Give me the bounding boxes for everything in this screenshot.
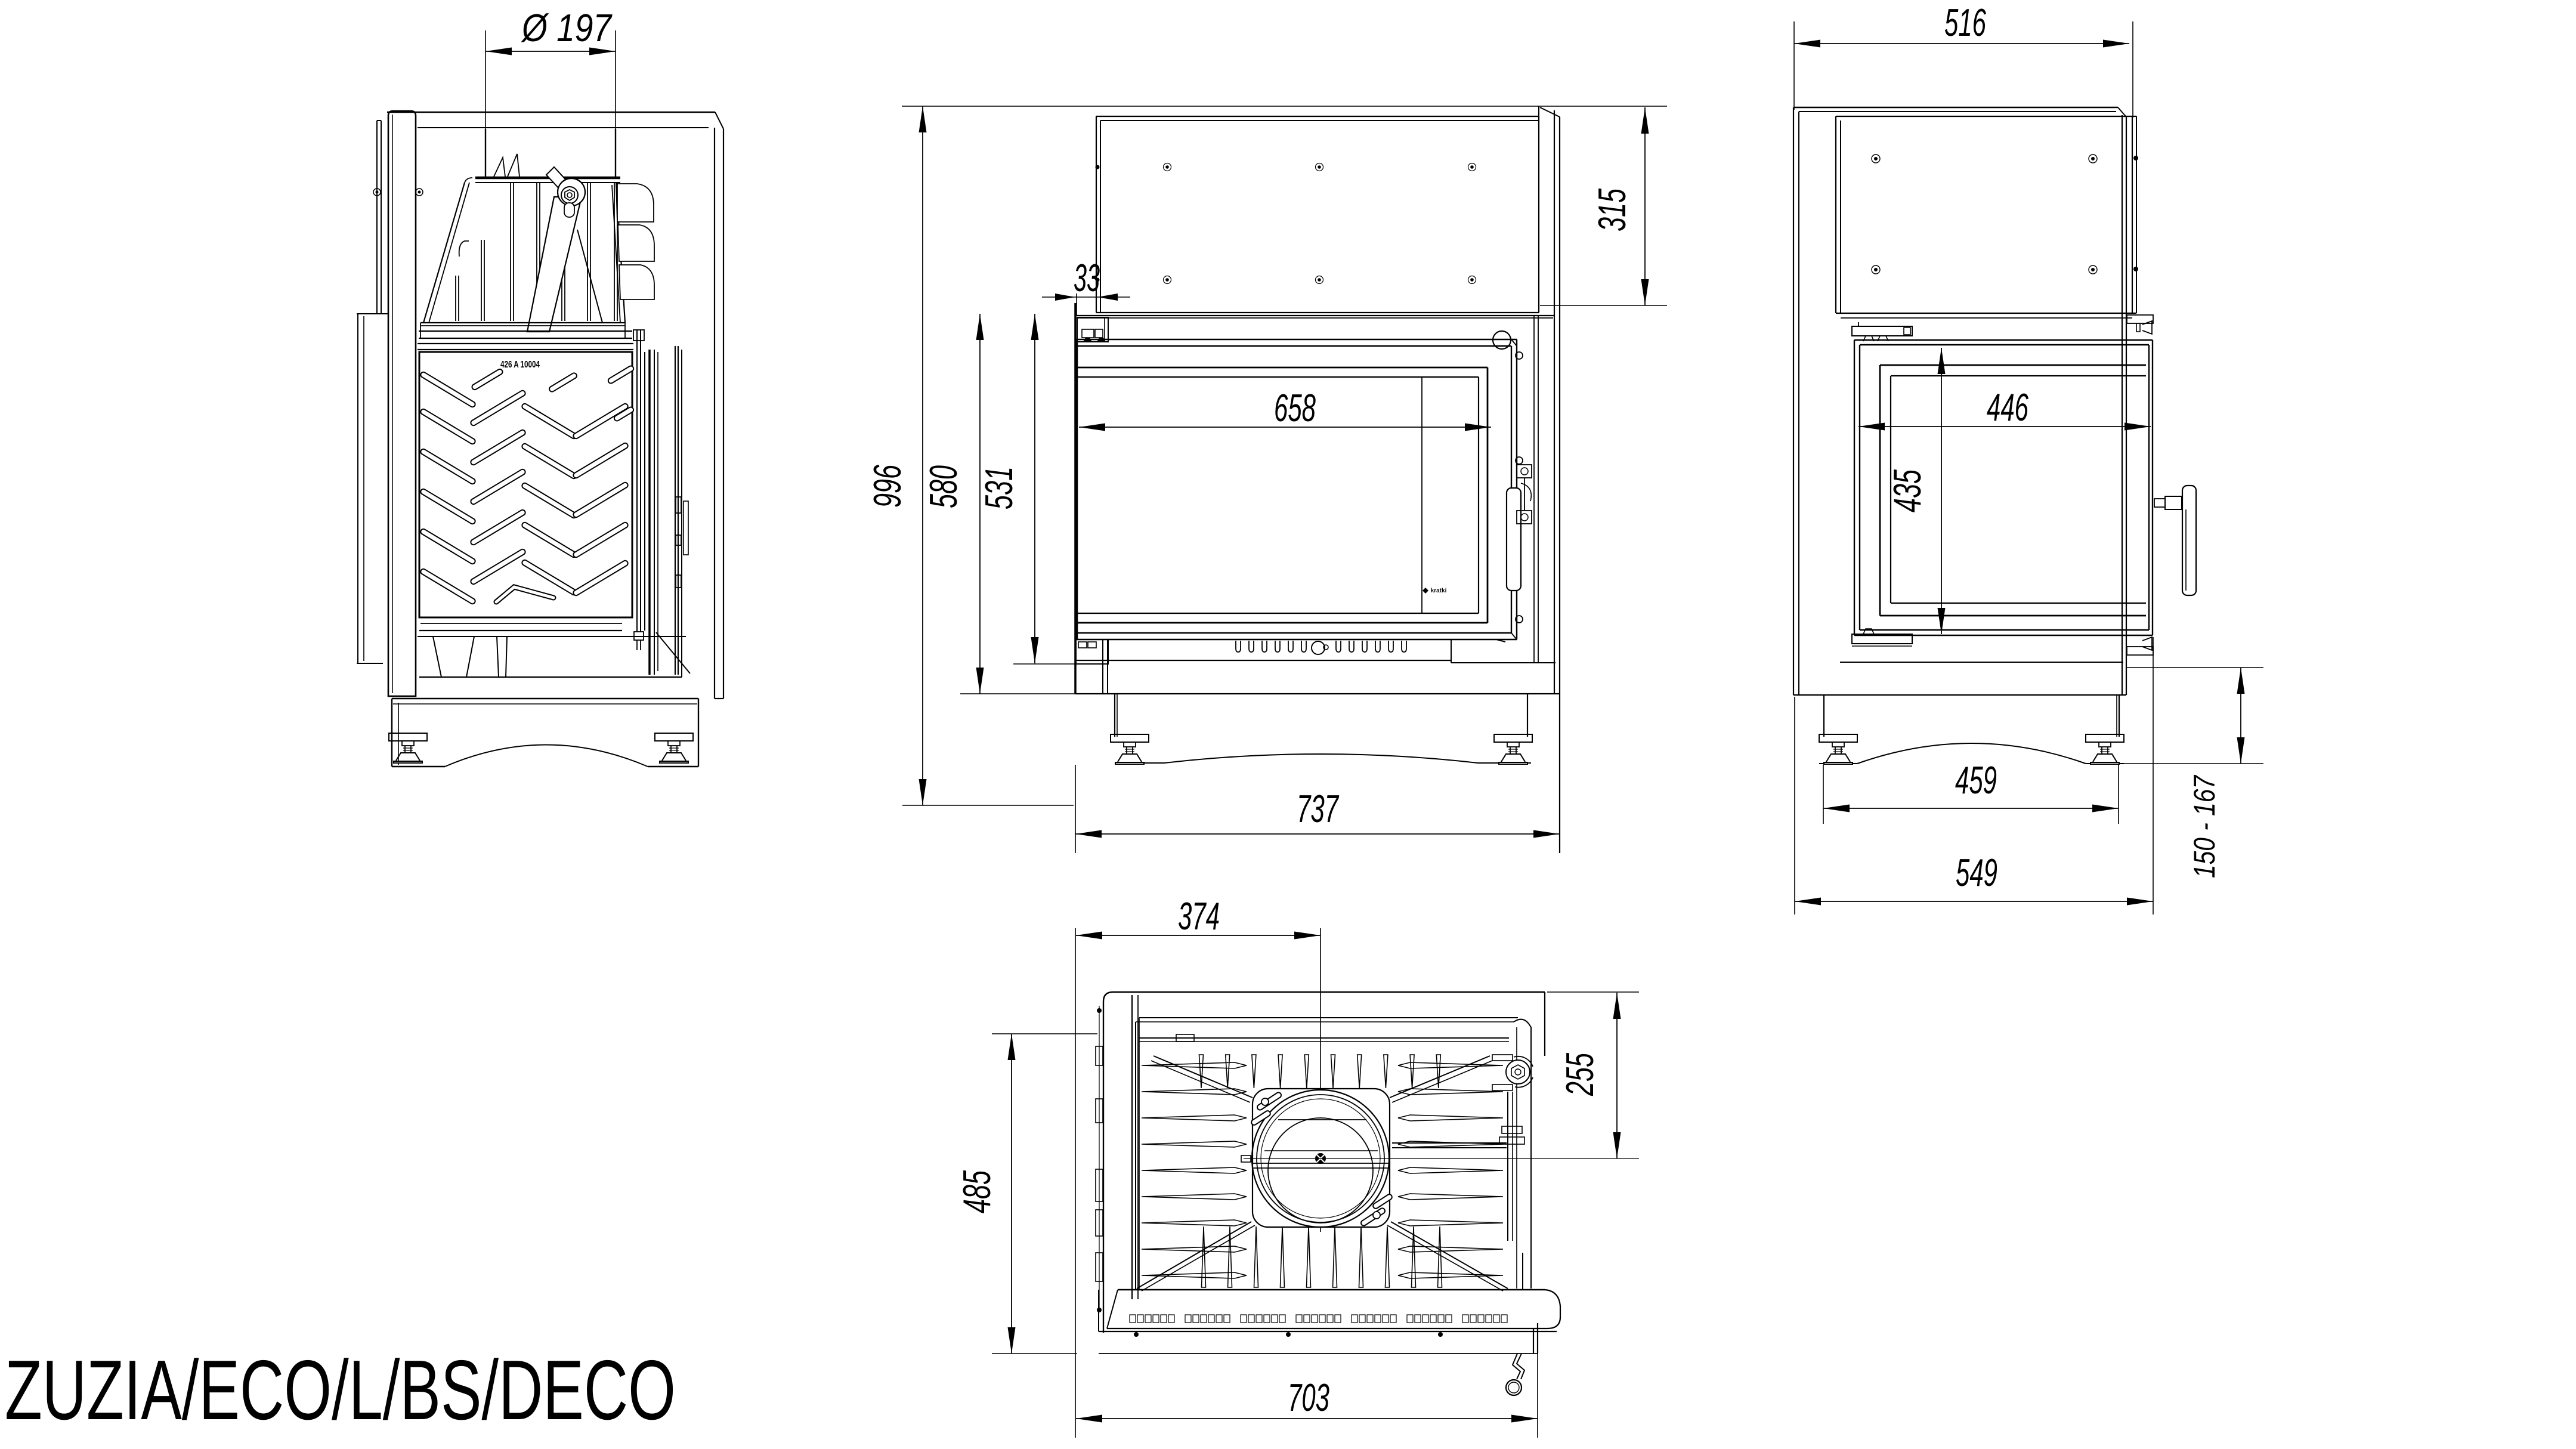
svg-text:446: 446: [1987, 385, 2029, 429]
svg-text:737: 737: [1297, 787, 1340, 830]
svg-text:kratki: kratki: [1431, 588, 1447, 594]
svg-text:703: 703: [1288, 1376, 1329, 1419]
svg-text:996: 996: [865, 464, 909, 508]
svg-text:315: 315: [1590, 188, 1634, 231]
svg-text:255: 255: [1558, 1052, 1601, 1096]
svg-text:459: 459: [1955, 758, 1997, 802]
svg-text:435: 435: [1885, 469, 1929, 512]
svg-text:531: 531: [977, 466, 1020, 509]
svg-text:549: 549: [1956, 851, 1997, 894]
svg-text:658: 658: [1274, 386, 1316, 430]
svg-text:426 A 10004: 426 A 10004: [500, 360, 540, 370]
svg-text:Ø 197: Ø 197: [521, 6, 613, 50]
svg-text:516: 516: [1944, 1, 1987, 44]
svg-text:ZUZIA/ECO/L/BS/DECO: ZUZIA/ECO/L/BS/DECO: [5, 1343, 676, 1438]
svg-text:580: 580: [921, 465, 965, 508]
svg-text:485: 485: [955, 1170, 998, 1213]
svg-text:150 - 167: 150 - 167: [2188, 774, 2221, 878]
svg-text:33: 33: [1074, 256, 1100, 299]
svg-text:374: 374: [1178, 894, 1220, 938]
